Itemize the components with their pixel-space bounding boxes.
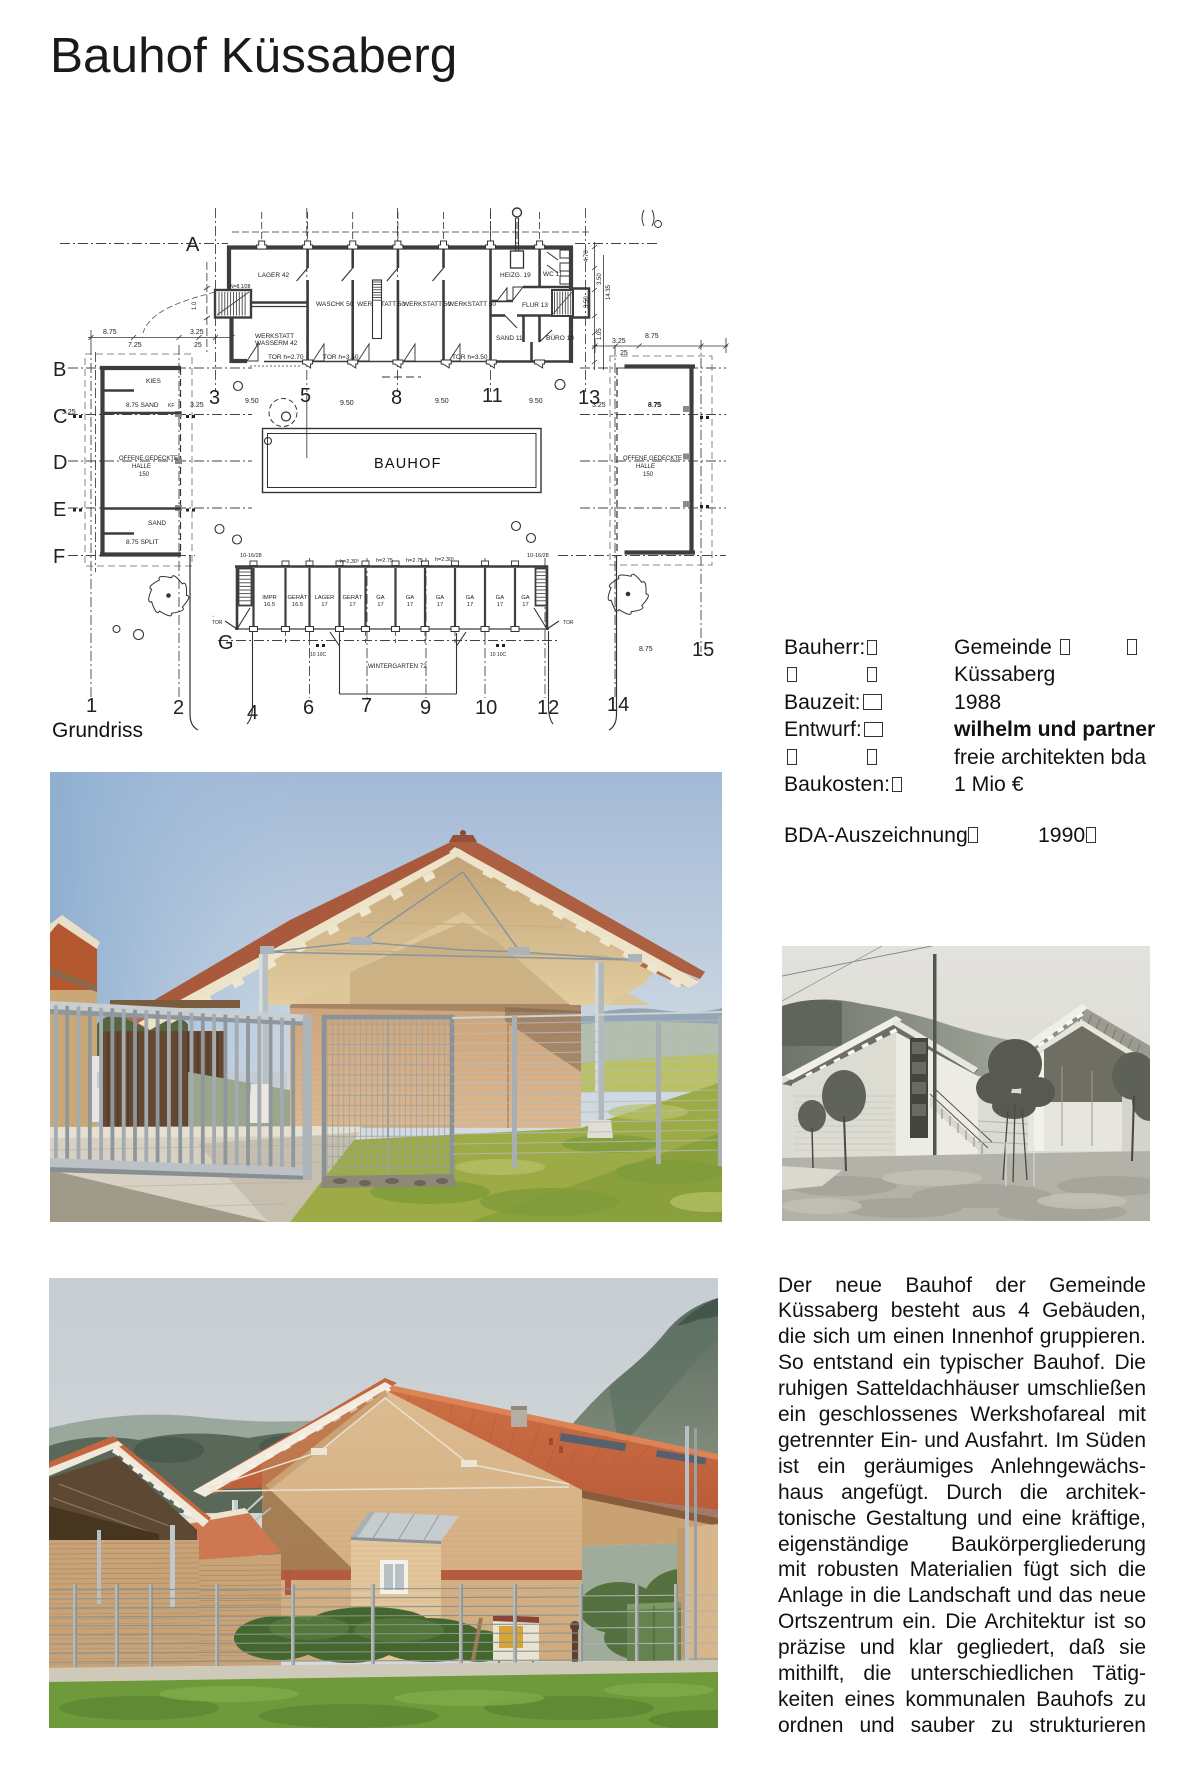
svg-text:OFFENE GEDECKTE: OFFENE GEDECKTE xyxy=(623,456,682,462)
svg-text:17: 17 xyxy=(407,602,413,608)
svg-text:8.75: 8.75 xyxy=(103,329,117,336)
svg-text:9.50: 9.50 xyxy=(435,398,449,405)
svg-text:2: 2 xyxy=(173,697,184,719)
svg-text:17: 17 xyxy=(377,602,383,608)
svg-text:TOR h=3.50: TOR h=3.50 xyxy=(452,354,488,361)
svg-text:E: E xyxy=(53,499,66,521)
svg-text:G: G xyxy=(218,632,234,654)
svg-text:1.05: 1.05 xyxy=(597,328,603,340)
svg-text:150: 150 xyxy=(139,472,150,478)
svg-text:GA: GA xyxy=(521,595,530,601)
svg-text:h=2.30⁵: h=2.30⁵ xyxy=(340,558,359,565)
svg-text:10-16/28: 10-16/28 xyxy=(240,553,262,559)
svg-text:OFFENE GEDECKTE: OFFENE GEDECKTE xyxy=(119,456,178,462)
svg-text:GA: GA xyxy=(406,595,415,601)
svg-text:5: 5 xyxy=(300,385,311,407)
svg-text:▫: ▫ xyxy=(212,614,214,620)
svg-text:SAND: SAND xyxy=(148,520,166,527)
svg-text:1: 1 xyxy=(86,695,97,717)
svg-text:TOR h=3.50: TOR h=3.50 xyxy=(323,354,359,361)
svg-text:15: 15 xyxy=(692,639,714,661)
svg-text:KIES: KIES xyxy=(146,378,161,385)
svg-text:10 10C: 10 10C xyxy=(490,652,507,658)
svg-text:8.75: 8.75 xyxy=(648,402,661,409)
svg-text:4.70: 4.70 xyxy=(584,250,590,262)
svg-text:9.50: 9.50 xyxy=(245,398,259,405)
svg-text:10-16/28: 10-16/28 xyxy=(527,553,549,559)
svg-text:9: 9 xyxy=(420,697,431,719)
svg-text:14.35: 14.35 xyxy=(606,284,612,300)
svg-text:h=2.30⁵: h=2.30⁵ xyxy=(435,556,454,563)
svg-text:150: 150 xyxy=(643,472,654,478)
svg-text:17: 17 xyxy=(437,602,443,608)
svg-text:BAUHOF: BAUHOF xyxy=(374,456,442,472)
svg-text:3: 3 xyxy=(209,387,220,409)
svg-text:8.75 SAND: 8.75 SAND xyxy=(126,402,159,409)
svg-text:16.5: 16.5 xyxy=(264,602,275,608)
svg-text:WINTERGARTEN 72: WINTERGARTEN 72 xyxy=(368,663,427,670)
svg-text:9.50: 9.50 xyxy=(529,398,543,405)
svg-text:14: 14 xyxy=(607,694,629,716)
svg-text:8.75: 8.75 xyxy=(639,646,653,653)
svg-text:A: A xyxy=(186,234,200,256)
svg-text:17: 17 xyxy=(522,602,528,608)
svg-text:7.25: 7.25 xyxy=(128,342,142,349)
svg-text:11: 11 xyxy=(482,385,503,407)
svg-text:3.50: 3.50 xyxy=(597,273,603,285)
svg-text:BÜRO 10: BÜRO 10 xyxy=(546,334,574,342)
svg-text:17: 17 xyxy=(349,602,355,608)
svg-text:WASCHK 50: WASCHK 50 xyxy=(316,301,354,308)
svg-text:10 10C: 10 10C xyxy=(310,652,327,658)
svg-text:3.25: 3.25 xyxy=(62,409,76,416)
svg-text:GA: GA xyxy=(376,595,385,601)
svg-text:F: F xyxy=(53,546,65,568)
svg-text:8.75 SPLIT: 8.75 SPLIT xyxy=(126,539,159,546)
svg-text:h=2.75: h=2.75 xyxy=(406,558,423,564)
svg-text:3.25: 3.25 xyxy=(612,338,626,345)
svg-text:GA: GA xyxy=(436,595,445,601)
svg-text:B: B xyxy=(53,359,66,381)
svg-text:IMPR: IMPR xyxy=(262,595,277,601)
svg-text:WERKSTATT 50: WERKSTATT 50 xyxy=(403,301,451,308)
svg-text:10: 10 xyxy=(475,697,497,719)
svg-text:GERÄT: GERÄT xyxy=(343,594,363,601)
svg-text:HEIZG. 19: HEIZG. 19 xyxy=(500,272,531,279)
svg-text:D: D xyxy=(53,452,67,474)
svg-text:8.75: 8.75 xyxy=(645,333,659,340)
svg-text:17: 17 xyxy=(321,602,327,608)
svg-text:3.25: 3.25 xyxy=(190,329,204,336)
svg-text:1.0: 1.0 xyxy=(192,301,198,310)
svg-text:TOR h=2.70: TOR h=2.70 xyxy=(268,354,304,361)
svg-text:h=2.75: h=2.75 xyxy=(376,558,393,564)
svg-text:GA: GA xyxy=(496,595,505,601)
svg-text:TOR: TOR xyxy=(212,620,223,626)
svg-text:HALLE: HALLE xyxy=(132,464,151,470)
svg-text:17: 17 xyxy=(497,602,503,608)
svg-text:SAND 11: SAND 11 xyxy=(496,335,523,342)
svg-text:GERÄT: GERÄT xyxy=(288,594,308,601)
svg-text:6: 6 xyxy=(303,697,314,719)
svg-text:HALLE: HALLE xyxy=(636,464,655,470)
svg-text:N=8.1/28: N=8.1/28 xyxy=(230,284,251,290)
svg-text:7: 7 xyxy=(361,695,372,717)
svg-text:WC 11: WC 11 xyxy=(543,271,563,278)
svg-text:FLUR 13: FLUR 13 xyxy=(522,302,548,309)
svg-text:8: 8 xyxy=(391,387,402,409)
svg-text:17: 17 xyxy=(467,602,473,608)
svg-text:9.50: 9.50 xyxy=(340,400,354,407)
svg-text:16.5: 16.5 xyxy=(292,602,303,608)
svg-text:LAGER: LAGER xyxy=(315,595,335,601)
svg-text:GA: GA xyxy=(466,595,475,601)
svg-text:25: 25 xyxy=(194,342,202,349)
svg-text:LAGER 42: LAGER 42 xyxy=(258,272,289,279)
svg-text:KF: KF xyxy=(168,403,174,409)
svg-text:3.25: 3.25 xyxy=(592,402,606,409)
svg-text:WERKSTATT 50: WERKSTATT 50 xyxy=(448,301,496,308)
svg-text:WERKSTATT: WERKSTATT xyxy=(255,333,294,340)
svg-text:WASSERM 42: WASSERM 42 xyxy=(255,340,298,347)
svg-text:TOR: TOR xyxy=(563,620,574,626)
